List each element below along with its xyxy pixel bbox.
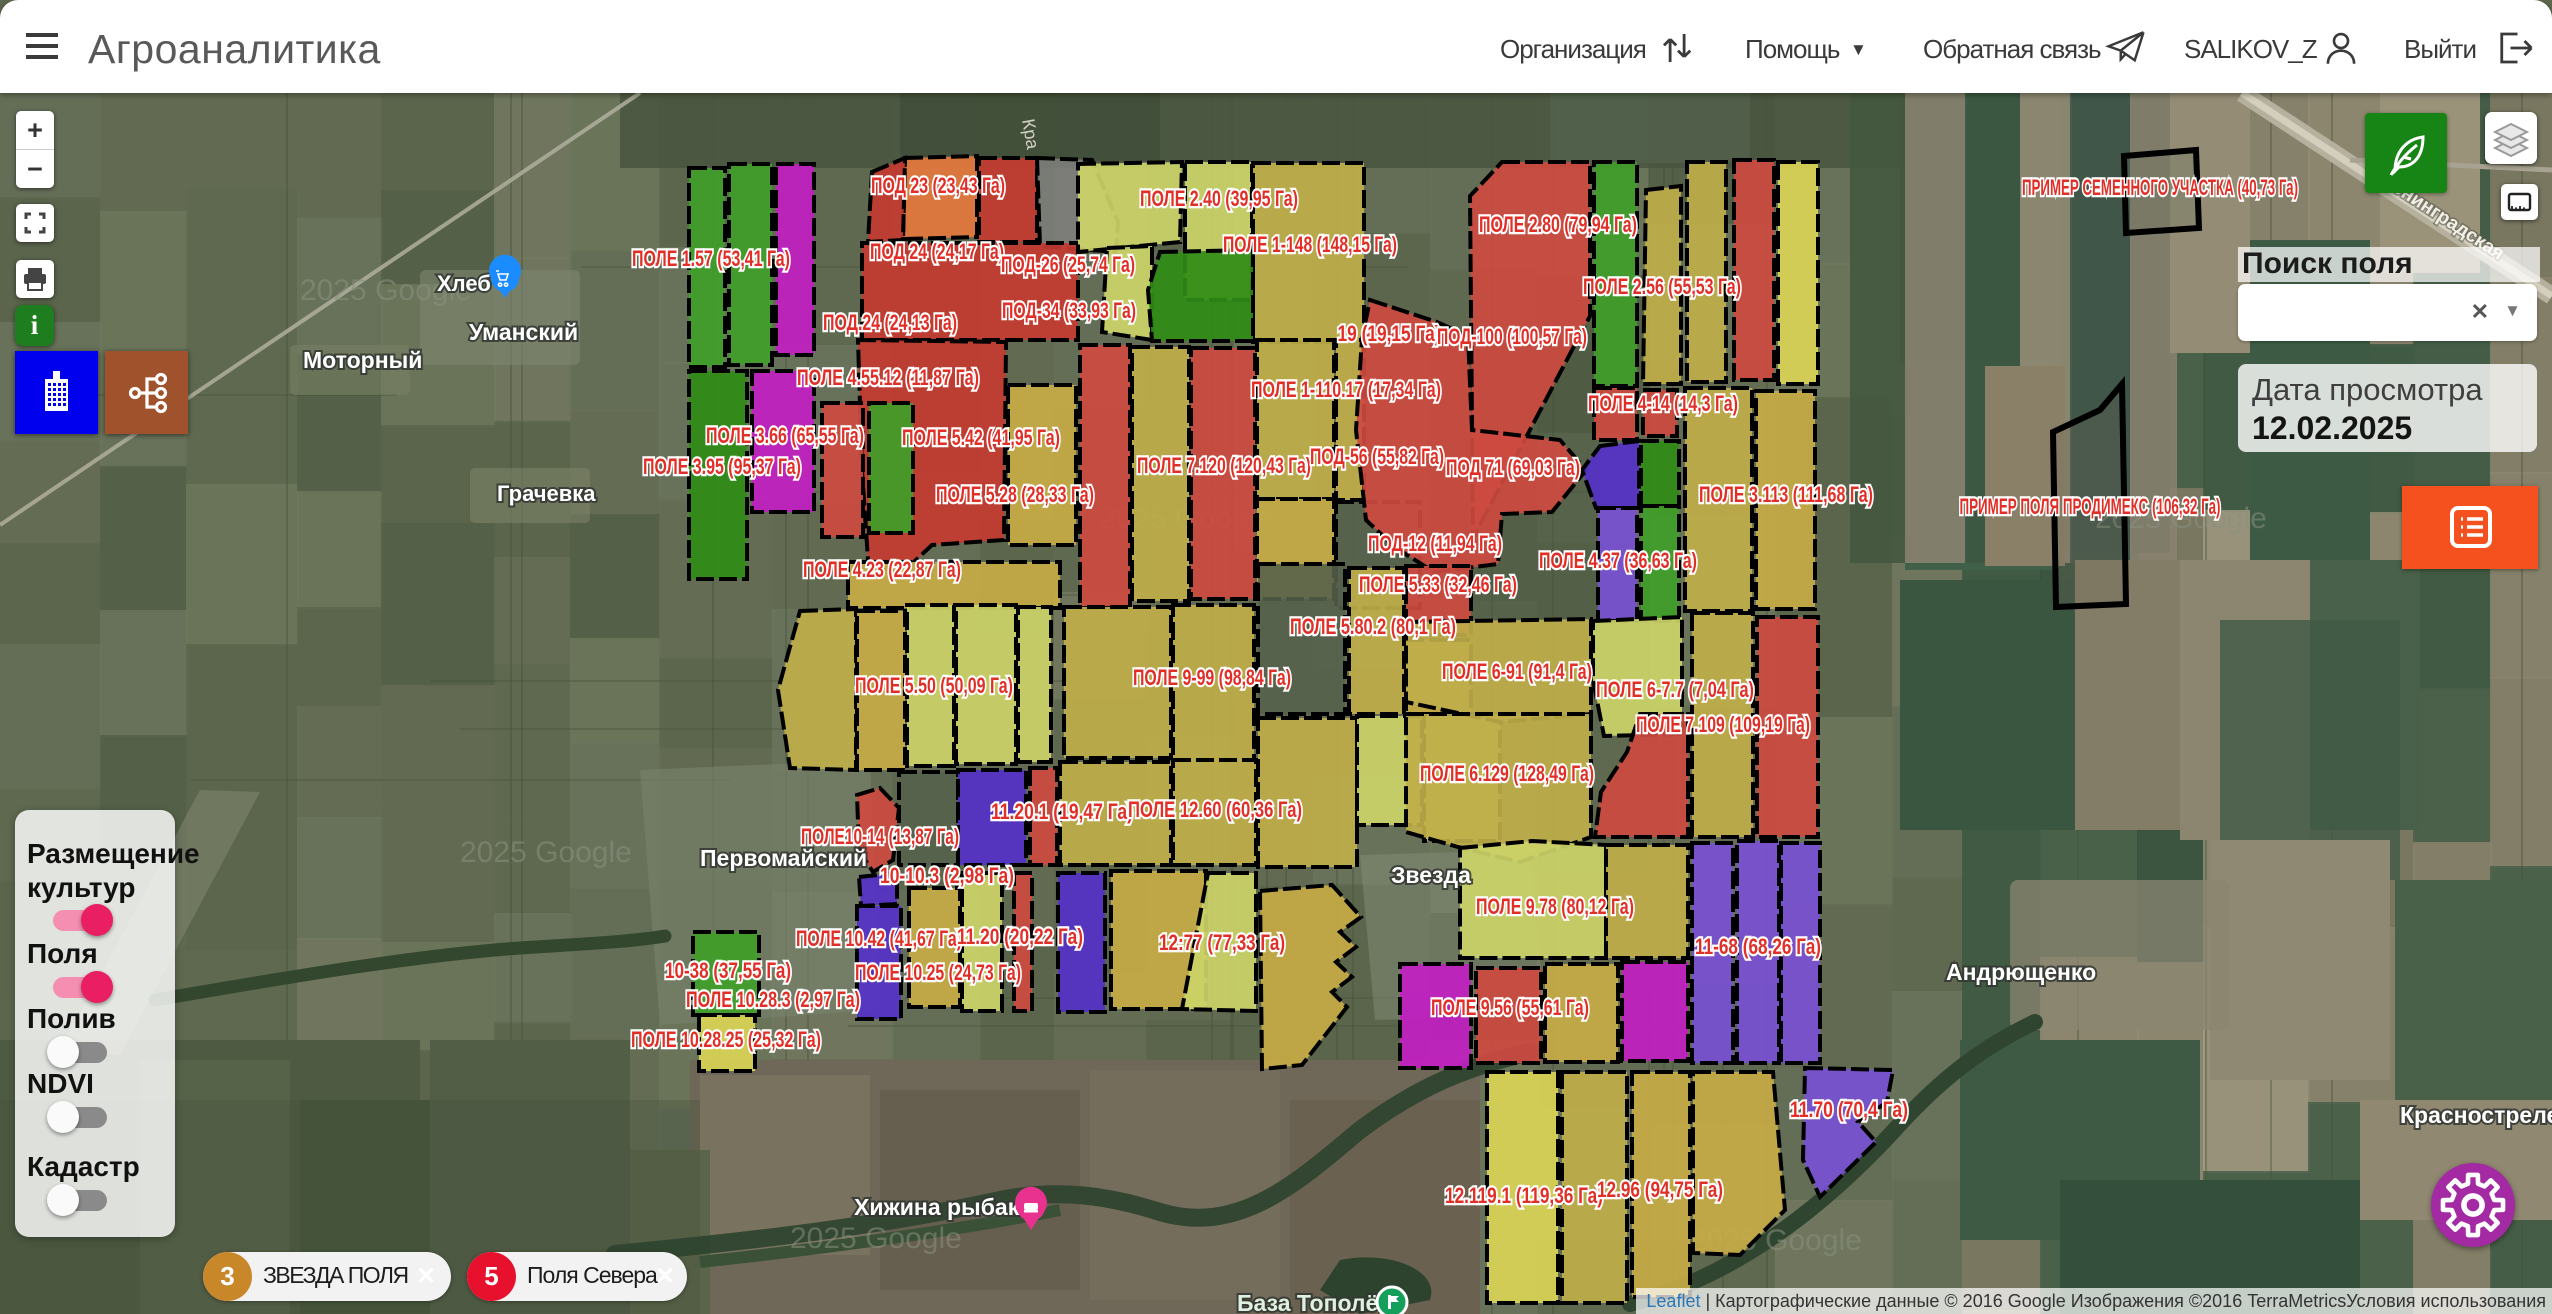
svg-text:ПОЛЕ 4.55.12 (11,87 Га): ПОЛЕ 4.55.12 (11,87 Га) xyxy=(797,365,979,390)
svg-text:ПОЛЕ 4.23 (22,87 Га): ПОЛЕ 4.23 (22,87 Га) xyxy=(803,557,961,582)
svg-text:ПОЛЕ 10.28.25 (25,32 Га): ПОЛЕ 10.28.25 (25,32 Га) xyxy=(631,1027,821,1052)
svg-text:ПОЛЕ 9-99 (98,84 Га): ПОЛЕ 9-99 (98,84 Га) xyxy=(1133,665,1291,690)
svg-text:ПОЛЕ 5.80.2 (80,1 Га): ПОЛЕ 5.80.2 (80,1 Га) xyxy=(1290,614,1456,639)
svg-text:ПОЛЕ 6-91 (91,4 Га): ПОЛЕ 6-91 (91,4 Га) xyxy=(1442,659,1592,684)
svg-text:11.20 (20,22 Га): 11.20 (20,22 Га) xyxy=(957,924,1083,949)
svg-text:ПОЛЕ 5.33 (32,46 Га): ПОЛЕ 5.33 (32,46 Га) xyxy=(1359,572,1517,597)
svg-text:ПОЛЕ 7.109 (109,19 Га): ПОЛЕ 7.109 (109,19 Га) xyxy=(1636,712,1810,737)
svg-text:ПОД-56 (55,82 Га): ПОД-56 (55,82 Га) xyxy=(1310,444,1444,469)
svg-text:ПОЛЕ 3.113 (111,68 Га): ПОЛЕ 3.113 (111,68 Га) xyxy=(1699,482,1873,507)
svg-text:11.70 (70,4 Га): 11.70 (70,4 Га) xyxy=(1790,1097,1908,1122)
svg-text:Хлеб: Хлеб xyxy=(437,271,491,296)
svg-text:12.119.1 (119,36 Га): 12.119.1 (119,36 Га) xyxy=(1445,1183,1603,1208)
svg-text:ПОЛЕ 1-148 (148,15 Га): ПОЛЕ 1-148 (148,15 Га) xyxy=(1223,232,1397,257)
svg-text:10-38 (37,55 Га): 10-38 (37,55 Га) xyxy=(665,958,791,983)
svg-text:Андрющенко: Андрющенко xyxy=(1946,959,2096,985)
svg-text:ПОЛЕ 7.120 (120,43 Га): ПОЛЕ 7.120 (120,43 Га) xyxy=(1137,453,1311,478)
svg-text:ПОЛЕ 10.28.3 (2,97 Га): ПОЛЕ 10.28.3 (2,97 Га) xyxy=(686,987,860,1012)
svg-text:ПОЛЕ 5.28 (28,33 Га): ПОЛЕ 5.28 (28,33 Га) xyxy=(936,482,1094,507)
svg-text:2025 Google: 2025 Google xyxy=(790,1222,962,1255)
svg-text:ПОД-100 (100,57 Га): ПОД-100 (100,57 Га) xyxy=(1437,324,1587,349)
svg-text:ПОЛЕ 1-110.17 (17,34 Га): ПОЛЕ 1-110.17 (17,34 Га) xyxy=(1251,377,1441,402)
svg-text:ПОД-12 (11,94 Га): ПОД-12 (11,94 Га) xyxy=(1368,531,1502,556)
svg-text:ПОД.24 (24,13 Га): ПОД.24 (24,13 Га) xyxy=(823,310,957,335)
svg-text:ПОЛЕ 6.129 (128,49 Га): ПОЛЕ 6.129 (128,49 Га) xyxy=(1420,761,1594,786)
svg-text:Моторный: Моторный xyxy=(303,347,422,373)
svg-text:Звезда: Звезда xyxy=(1391,862,1471,888)
svg-text:ПОЛЕ 2.40 (39,95 Га): ПОЛЕ 2.40 (39,95 Га) xyxy=(1140,186,1298,211)
svg-text:ПОЛЕ 10.42 (41,67 Га): ПОЛЕ 10.42 (41,67 Га) xyxy=(796,926,962,951)
svg-text:ПОД 23 (23,43 Га): ПОД 23 (23,43 Га) xyxy=(871,173,1005,198)
svg-text:ПОЛЕ 5.42 (41,95 Га): ПОЛЕ 5.42 (41,95 Га) xyxy=(902,425,1060,450)
svg-text:12.96 (94,75 Га): 12.96 (94,75 Га) xyxy=(1597,1177,1723,1202)
svg-text:Уманский: Уманский xyxy=(469,319,578,345)
svg-text:ПОЛЕ 9.56 (55,61 Га): ПОЛЕ 9.56 (55,61 Га) xyxy=(1431,995,1589,1020)
svg-text:ПОЛЕ 12.60 (60,36 Га): ПОЛЕ 12.60 (60,36 Га) xyxy=(1128,797,1302,822)
svg-text:ПОЛЕ 2.80 (79,94 Га): ПОЛЕ 2.80 (79,94 Га) xyxy=(1479,212,1637,237)
svg-text:ПОД 24 (24,17 Га): ПОД 24 (24,17 Га) xyxy=(870,239,1004,264)
svg-text:ПОЛЕ 1.57 (53,41 Га): ПОЛЕ 1.57 (53,41 Га) xyxy=(632,246,790,271)
svg-text:ПОЛЕ 2.56 (55,53 Га): ПОЛЕ 2.56 (55,53 Га) xyxy=(1583,274,1741,299)
svg-text:ПОЛЕ 4-14 (14,3 Га): ПОЛЕ 4-14 (14,3 Га) xyxy=(1588,391,1738,416)
svg-text:ПОЛЕ 6-7.7 (7,04 Га): ПОЛЕ 6-7.7 (7,04 Га) xyxy=(1596,677,1754,702)
svg-text:11-68 (68,26 Га): 11-68 (68,26 Га) xyxy=(1695,934,1821,959)
svg-text:Краснострелец: Краснострелец xyxy=(2400,1102,2552,1128)
svg-text:11.20.1 (19,47 Га): 11.20.1 (19,47 Га) xyxy=(991,799,1133,824)
svg-text:ПОЛЕ 5.50 (50,09 Га): ПОЛЕ 5.50 (50,09 Га) xyxy=(855,673,1013,698)
svg-text:2025 Google: 2025 Google xyxy=(460,836,632,869)
svg-text:12:77 (77,33 Га): 12:77 (77,33 Га) xyxy=(1159,930,1285,955)
svg-text:ПОЛЕ 10.25 (24,73 Га): ПОЛЕ 10.25 (24,73 Га) xyxy=(855,960,1021,985)
svg-text:ПОЛЕ 4.37 (36,63 Га): ПОЛЕ 4.37 (36,63 Га) xyxy=(1539,548,1697,573)
svg-text:ПОД-34 (33,93 Га): ПОД-34 (33,93 Га) xyxy=(1002,298,1136,323)
svg-text:ПОД-26 (25,74 Га): ПОД-26 (25,74 Га) xyxy=(1001,252,1135,277)
svg-text:ПРИМЕР ПОЛЯ ПРОДИМЕКС (106,32: ПРИМЕР ПОЛЯ ПРОДИМЕКС (106,32 Га) xyxy=(1960,494,2221,519)
svg-text:19 (19,15 Га): 19 (19,15 Га) xyxy=(1338,321,1441,346)
svg-text:ПОД 71 (69,03 Га): ПОД 71 (69,03 Га) xyxy=(1446,455,1580,480)
svg-text:Грачевка: Грачевка xyxy=(497,481,596,506)
svg-text:ПОЛЕ 3.95 (95,37 Га): ПОЛЕ 3.95 (95,37 Га) xyxy=(643,454,801,479)
svg-text:ПОЛЕ 9.78 (80,12 Га): ПОЛЕ 9.78 (80,12 Га) xyxy=(1476,894,1634,919)
svg-text:База Тополёк: База Тополёк xyxy=(1237,1290,1390,1314)
svg-text:10-10.3 (2,98 Га): 10-10.3 (2,98 Га) xyxy=(880,863,1014,888)
svg-text:Хижина рыбака: Хижина рыбака xyxy=(854,1194,1032,1220)
svg-text:Первомайский: Первомайский xyxy=(700,845,867,871)
svg-text:ПРИМЕР СЕМЕННОГО УЧАСТКА (40,7: ПРИМЕР СЕМЕННОГО УЧАСТКА (40,73 Га) xyxy=(2022,175,2298,200)
svg-text:ПОЛЕ 3.66 (65,55 Га): ПОЛЕ 3.66 (65,55 Га) xyxy=(706,423,864,448)
